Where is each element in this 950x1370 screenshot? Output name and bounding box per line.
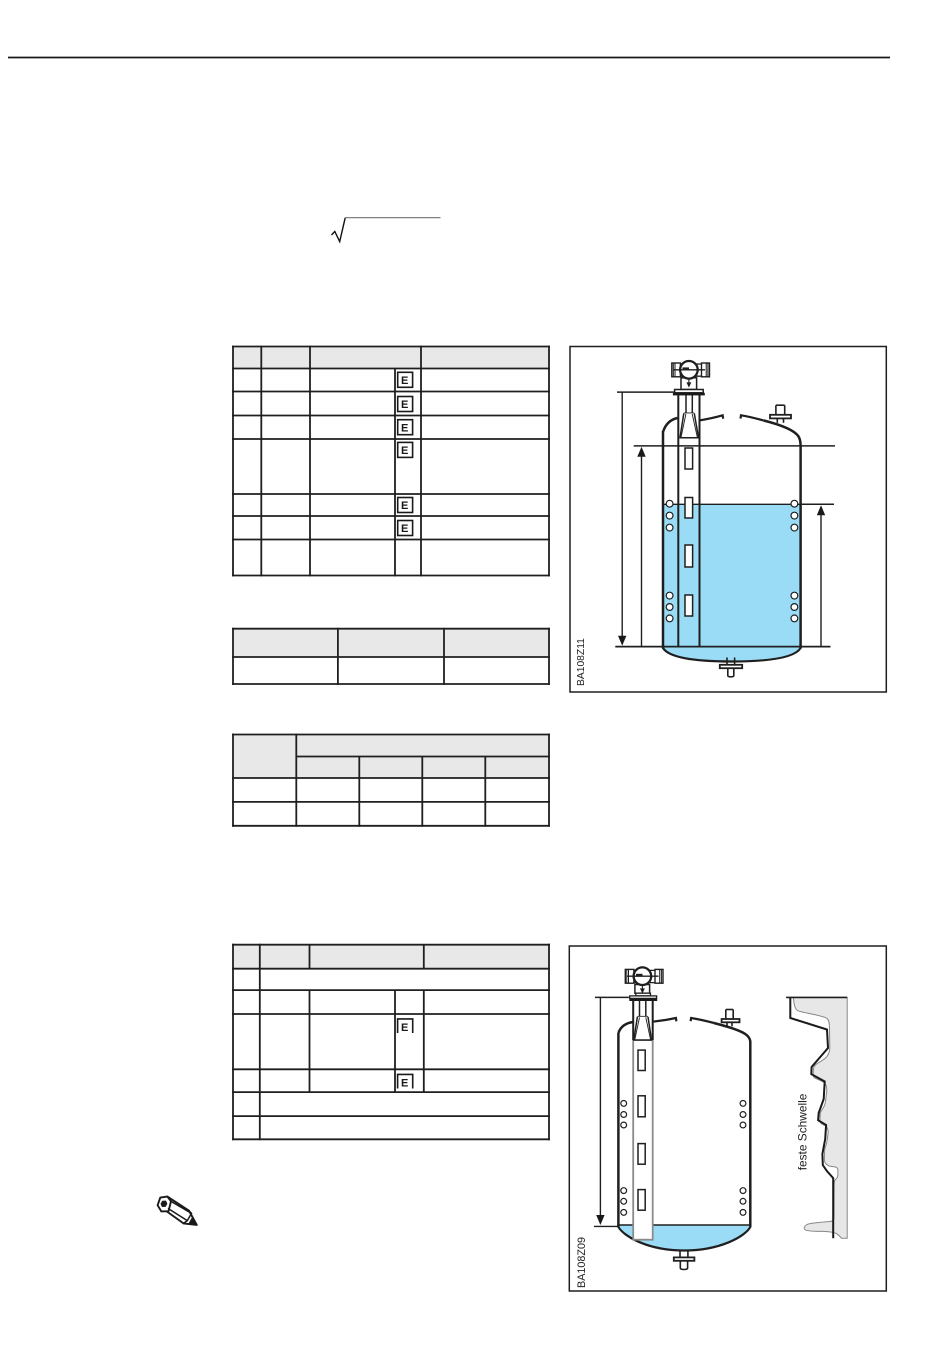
svg-text:E: E (401, 375, 408, 387)
svg-text:E: E (401, 422, 408, 434)
svg-text:E: E (401, 1022, 408, 1034)
svg-text:BA108Z09: BA108Z09 (576, 1237, 588, 1288)
svg-text:E: E (401, 399, 408, 411)
svg-text:feste Schwelle: feste Schwelle (796, 1093, 810, 1170)
svg-text:E: E (401, 1077, 408, 1089)
svg-text:E: E (401, 500, 408, 512)
svg-text:BA108Z11: BA108Z11 (576, 638, 587, 686)
svg-text:E: E (401, 445, 408, 457)
svg-text:E: E (401, 523, 408, 535)
